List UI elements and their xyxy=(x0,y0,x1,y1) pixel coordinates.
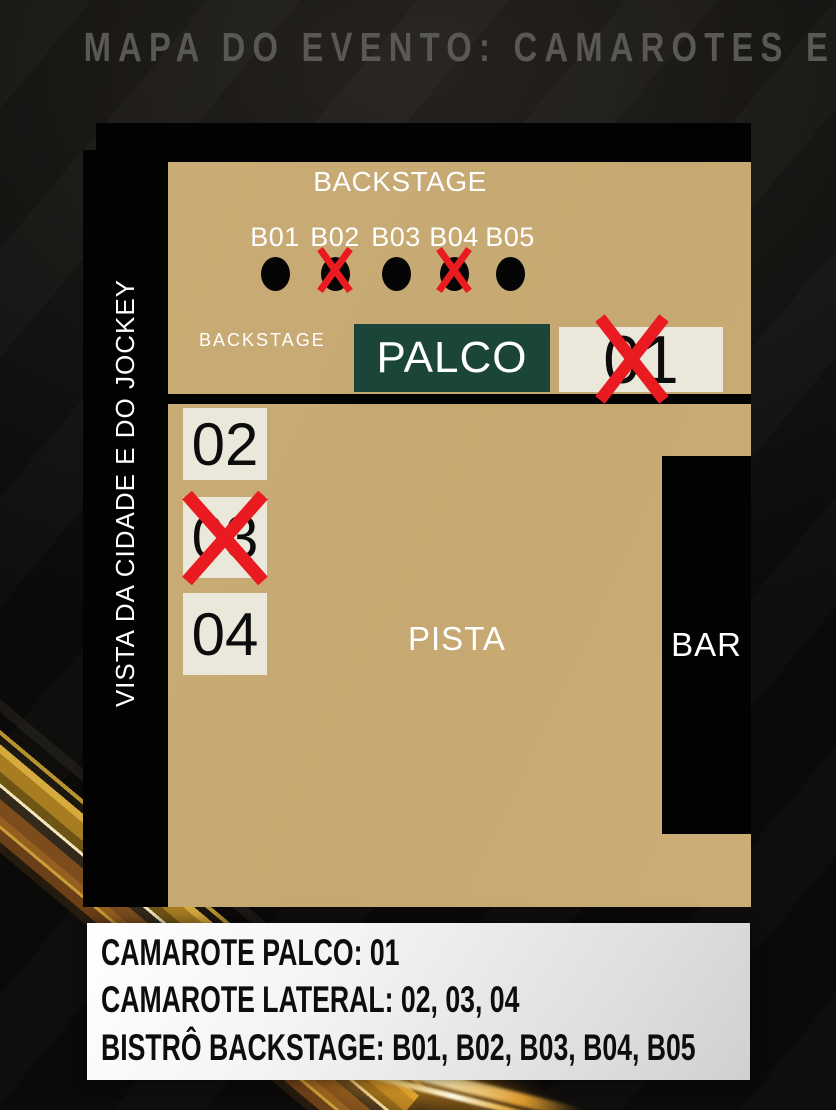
legend-line-camarote-lateral: CAMAROTE LATERAL: 02, 03, 04 xyxy=(101,979,568,1021)
left-wall-label: VISTA DA CIDADE E DO JOCKEY xyxy=(110,279,141,707)
crossed-out-x-icon xyxy=(592,313,672,405)
bar-area: BAR xyxy=(662,456,751,834)
bistro-dot xyxy=(382,257,411,291)
bistro-label: B01 xyxy=(243,222,307,253)
camarote-04: 04 xyxy=(183,593,267,675)
page-title: MAPA DO EVENTO: CAMAROTES E BISTRÔS xyxy=(84,24,753,71)
pista-label: PISTA xyxy=(408,620,506,658)
bistro-b02: B02 xyxy=(303,222,367,291)
backstage-title: BACKSTAGE xyxy=(300,166,500,198)
crossed-out-x-icon xyxy=(316,246,354,294)
bistro-b01: B01 xyxy=(243,222,307,291)
stage-palco: PALCO xyxy=(354,324,550,392)
crossed-out-x-icon xyxy=(177,489,273,587)
camarote-02: 02 xyxy=(183,408,267,480)
legend-panel: CAMAROTE PALCO: 01 CAMAROTE LATERAL: 02,… xyxy=(87,923,750,1080)
bistro-b03: B03 xyxy=(364,222,428,291)
bistro-dot xyxy=(261,257,290,291)
event-map-page: MAPA DO EVENTO: CAMAROTES E BISTRÔS VIST… xyxy=(0,0,836,1110)
bistro-b05: B05 xyxy=(478,222,542,291)
map-left-wall: VISTA DA CIDADE E DO JOCKEY xyxy=(83,150,168,907)
legend-line-camarote-palco: CAMAROTE PALCO: 01 xyxy=(101,932,568,974)
legend-line-bistro-backstage: BISTRÔ BACKSTAGE: B01, B02, B03, B04, B0… xyxy=(101,1027,568,1069)
bistro-dot xyxy=(496,257,525,291)
map-top-wall xyxy=(96,123,751,162)
backstage-area-label: BACKSTAGE xyxy=(199,330,326,351)
bistro-label: B05 xyxy=(478,222,542,253)
crossed-out-x-icon xyxy=(435,246,473,294)
bistro-b04: B04 xyxy=(422,222,486,291)
bistro-label: B03 xyxy=(364,222,428,253)
